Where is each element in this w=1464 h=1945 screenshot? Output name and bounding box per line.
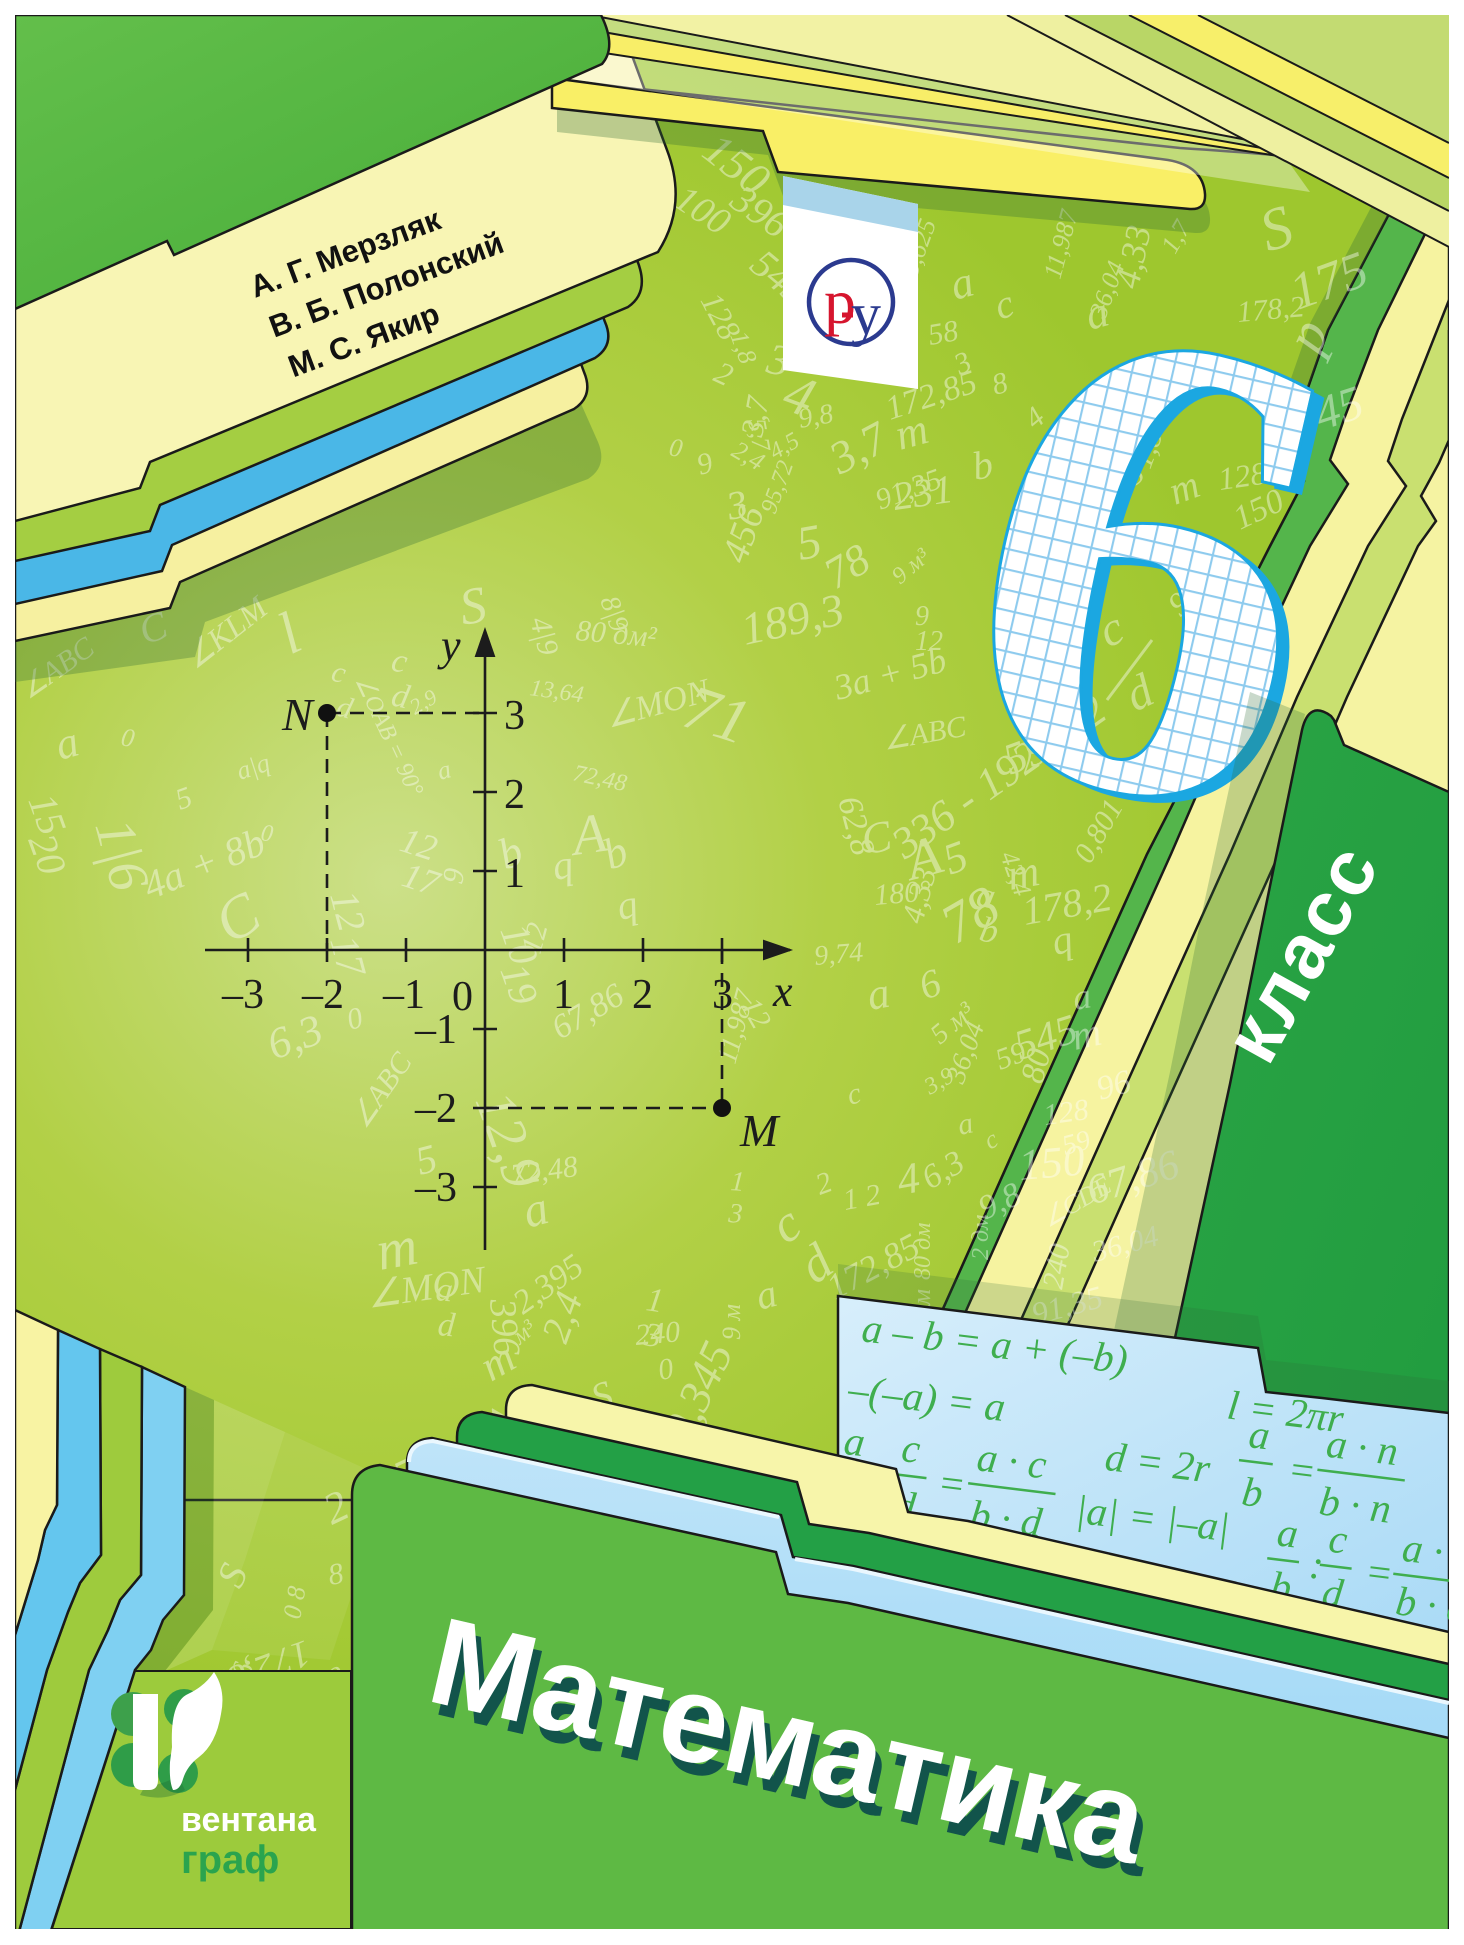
svg-text:9 м: 9 м bbox=[717, 1304, 746, 1340]
svg-text:M: M bbox=[739, 1105, 781, 1156]
svg-text:9,74: 9,74 bbox=[813, 937, 865, 972]
svg-text:9,8: 9,8 bbox=[796, 398, 836, 435]
svg-text:2 дм: 2 дм bbox=[968, 1215, 994, 1260]
svg-text:231: 231 bbox=[890, 466, 956, 519]
svg-text:2: 2 bbox=[504, 772, 525, 818]
svg-text:1: 1 bbox=[730, 1166, 746, 1198]
svg-text:3: 3 bbox=[504, 693, 525, 739]
svg-text:3: 3 bbox=[712, 972, 733, 1018]
svg-text:вентана: вентана bbox=[181, 1801, 317, 1839]
svg-text:80 дм: 80 дм bbox=[910, 1223, 936, 1280]
svg-text:3: 3 bbox=[727, 1198, 744, 1230]
svg-text:2: 2 bbox=[632, 972, 653, 1018]
svg-text:N: N bbox=[281, 689, 315, 740]
svg-text:a · c: a · c bbox=[975, 1433, 1050, 1487]
svg-text:1: 1 bbox=[504, 851, 525, 897]
svg-text:=: = bbox=[1286, 1445, 1319, 1494]
svg-text:b · n: b · n bbox=[1317, 1477, 1394, 1531]
svg-text:240: 240 bbox=[634, 1315, 682, 1352]
svg-text:x: x bbox=[772, 967, 793, 1016]
svg-text:=: = bbox=[935, 1459, 968, 1508]
svg-text:150: 150 bbox=[1017, 1135, 1087, 1190]
svg-text:1: 1 bbox=[553, 972, 574, 1018]
svg-text:58: 58 bbox=[925, 314, 960, 352]
svg-text:–2: –2 bbox=[414, 1086, 457, 1132]
svg-text:–3: –3 bbox=[221, 972, 264, 1018]
svg-text:граф: граф bbox=[181, 1838, 279, 1882]
svg-text:3,7: 3,7 bbox=[733, 392, 776, 441]
svg-text:a · n: a · n bbox=[1324, 1420, 1401, 1474]
svg-text:–1: –1 bbox=[414, 1007, 457, 1053]
svg-text:1 2: 1 2 bbox=[840, 1178, 883, 1217]
svg-text:–2: –2 bbox=[301, 972, 344, 1018]
svg-text:–3: –3 bbox=[414, 1165, 457, 1211]
svg-text:=: = bbox=[1363, 1548, 1396, 1597]
svg-text:y: y bbox=[437, 621, 461, 670]
svg-text:у: у bbox=[851, 281, 881, 347]
